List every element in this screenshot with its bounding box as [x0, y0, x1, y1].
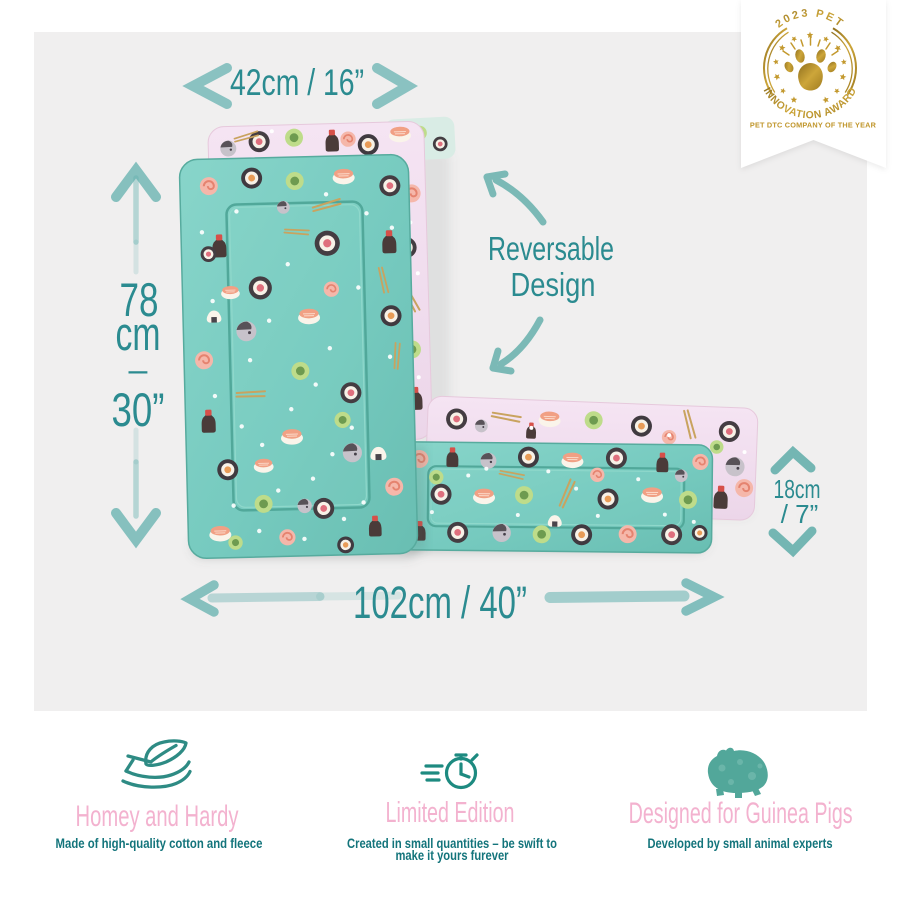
svg-text:PET DTC COMPANY OF THE YEAR: PET DTC COMPANY OF THE YEAR	[750, 121, 877, 130]
